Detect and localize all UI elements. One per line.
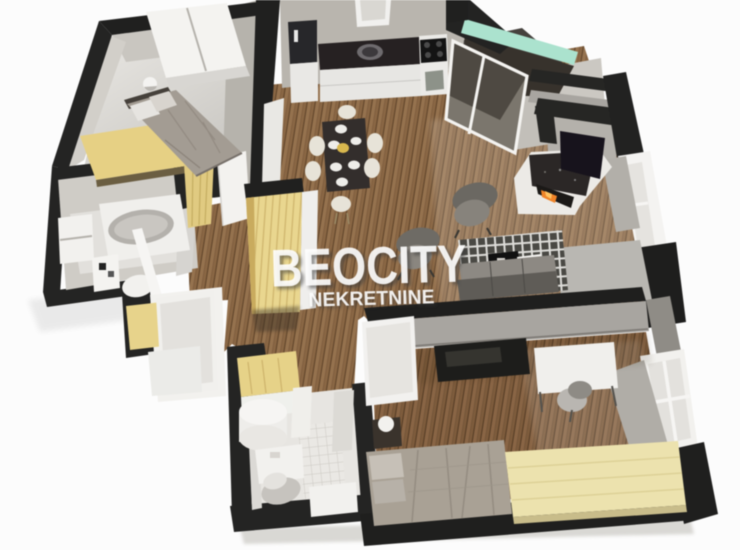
svg-text:NEKRETNINE: NEKRETNINE (308, 286, 435, 311)
